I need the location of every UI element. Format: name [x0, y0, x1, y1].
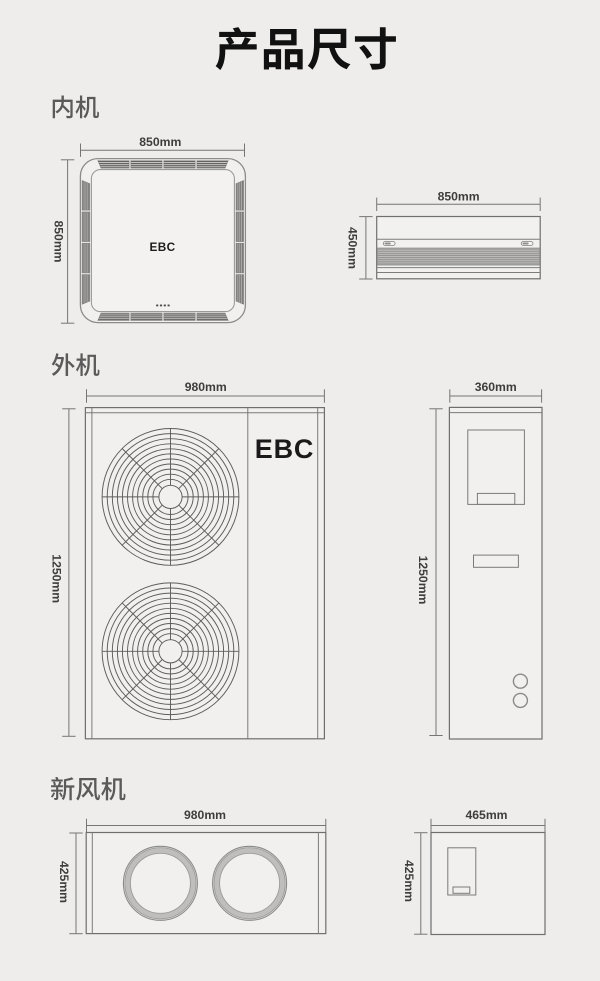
svg-text:EBC: EBC [255, 434, 314, 464]
svg-text:450mm: 450mm [346, 227, 360, 269]
svg-text:850mm: 850mm [438, 189, 480, 203]
svg-text:425mm: 425mm [57, 861, 71, 903]
svg-text:1250mm: 1250mm [50, 554, 64, 603]
svg-text:850mm: 850mm [139, 135, 181, 149]
svg-text:980mm: 980mm [185, 380, 227, 394]
svg-text:850mm: 850mm [51, 220, 65, 262]
svg-text:425mm: 425mm [402, 860, 416, 902]
svg-text:360mm: 360mm [475, 380, 517, 394]
svg-text:465mm: 465mm [465, 808, 507, 822]
svg-text:EBC: EBC [149, 240, 175, 254]
svg-text:1250mm: 1250mm [416, 556, 430, 605]
svg-text:980mm: 980mm [184, 808, 226, 822]
